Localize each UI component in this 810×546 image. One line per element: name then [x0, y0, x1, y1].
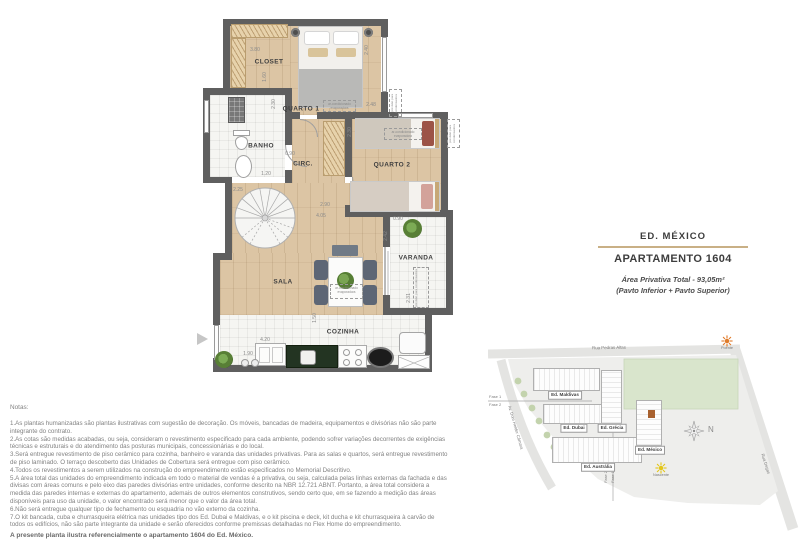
wall-lamp-icon: [364, 28, 373, 37]
ac-condenser-area: previsão para condensadora: [389, 89, 402, 117]
fase-1-label-bottom: Fase 1: [611, 471, 615, 483]
shower: [228, 97, 245, 123]
dining-chair: [363, 260, 377, 280]
sun-label: Poente: [721, 346, 733, 350]
room-label-quarto-2: QUARTO 2: [374, 162, 411, 169]
bath-sink: [235, 155, 252, 178]
room-label-banho: BANHO: [248, 143, 274, 150]
wall-lamp-icon: [291, 28, 300, 37]
fase-1-label-left: Fase 1: [489, 394, 501, 399]
window: [204, 100, 209, 133]
room-label-quarto-1: QUARTO 1: [283, 106, 320, 113]
sideboard: [332, 245, 358, 256]
burner: [343, 359, 350, 366]
sliding-door: [387, 251, 389, 295]
dimension-label: 1.20: [261, 171, 271, 177]
condenser-label: previsão para condensadora: [390, 90, 401, 116]
map-building-label: Ed. México: [635, 446, 665, 455]
blanket: [351, 182, 409, 211]
map-building-label: Ed. Maldivas: [548, 391, 582, 400]
highlighted-unit: [648, 410, 655, 418]
note-item: 7.O kit bancada, cuba e churrasqueira el…: [10, 514, 450, 530]
north-label: N: [708, 425, 714, 434]
wall-segment: [285, 170, 292, 183]
wall-segment: [383, 308, 453, 315]
pillow: [304, 31, 330, 45]
dimension-label: 4.05: [316, 213, 326, 219]
floor-plan: CLOSETQUARTO 1BANHOCIRC.QUARTO 2SALAVARA…: [195, 5, 463, 377]
sliding-door: [384, 247, 386, 295]
title-block: ED. MÉXICO APARTAMENTO 1604 Área Privati…: [598, 231, 748, 297]
note-item: 4.Todos os revestimentos a serem utiliza…: [10, 467, 450, 475]
window: [382, 37, 387, 92]
accent-pillow: [336, 48, 356, 57]
condenser-label: previsão para condensadora: [448, 120, 459, 147]
notes-footer: A presente planta ilustra referencialmen…: [10, 532, 450, 539]
room-label-sala: SALA: [273, 279, 292, 286]
wall-segment: [225, 183, 232, 259]
wall-segment: [290, 112, 300, 119]
dimension-label: 2.30: [347, 127, 353, 137]
ac-evaporator-unit: ar-condicionadoevaporadora: [330, 284, 363, 299]
room-label-closet: CLOSET: [255, 59, 284, 66]
dining-chair: [314, 260, 328, 280]
closet-shelf: [231, 24, 288, 38]
ac-label-line: evaporadora: [385, 134, 421, 138]
pillow: [422, 121, 434, 146]
room-label-circ-: CIRC.: [293, 161, 313, 168]
pillow: [421, 184, 433, 209]
entry-arrow-icon: [197, 333, 208, 345]
headboard: [435, 182, 439, 211]
map-building-label: Ed. Austrália: [581, 463, 615, 472]
stool: [241, 359, 249, 367]
dimension-label: 2.42: [383, 231, 389, 241]
closet-shelf: [231, 38, 246, 88]
pillow: [333, 31, 359, 45]
dimension-label: 0.90: [285, 151, 295, 157]
cooktop-oven: [367, 347, 394, 368]
kitchen-cabinet: [255, 343, 286, 366]
wall-segment: [223, 19, 230, 95]
headboard: [435, 119, 439, 148]
poente-sun-icon: [721, 334, 733, 346]
nascente-sun-icon: [655, 461, 667, 473]
burner: [355, 349, 362, 356]
ac-label-line: evaporadora: [324, 106, 355, 110]
notes-section: Notas: 1.As plantas humanizadas são plan…: [10, 404, 450, 546]
ac-condenser-area: previsão para condensadora: [447, 119, 460, 148]
fase-2-label-bottom: Fase 2: [604, 471, 608, 483]
dining-chair: [363, 285, 377, 305]
ac-label-line: evaporadora: [331, 290, 362, 294]
dimension-label: 1.90: [243, 351, 253, 357]
note-item: 3.Será entregue revestimento de piso cer…: [10, 451, 450, 467]
dimension-label: 2.31: [406, 293, 412, 303]
stove: [338, 345, 367, 368]
map-building-ed-dubai: [543, 404, 602, 424]
laundry-area: [398, 355, 430, 369]
burner: [343, 349, 350, 356]
map-building-ed-gr-cia: [601, 370, 622, 424]
site-map: Rua Pedras Altas Av. Dom Helder Câmara R…: [488, 333, 808, 535]
burner: [355, 359, 362, 366]
fridge: [399, 332, 426, 354]
sun-label: Nascente: [653, 473, 669, 477]
note-item: 1.As plantas humanizadas são plantas ilu…: [10, 420, 450, 436]
ac-condenser-area: previsão para condensadora: [413, 267, 429, 308]
bed-quarto1: [298, 26, 363, 108]
terrace-plant: [215, 351, 233, 368]
ac-evaporator-unit: ar-condicionadoevaporadora: [323, 100, 356, 112]
street-rua-pedras-altas: Rua Pedras Altas: [592, 345, 626, 351]
dimension-label: 2.48: [366, 102, 376, 108]
map-building-ed-m-xico: [636, 400, 662, 446]
divider-rule: [598, 246, 748, 248]
varanda-plant: [403, 219, 422, 238]
fase-2-label-left: Fase 2: [489, 402, 501, 407]
map-building-label: Ed. Dubai: [560, 424, 587, 433]
cabinet-door: [272, 347, 283, 363]
dimension-label: 1.50: [312, 313, 318, 323]
note-item: 2.As cotas são medidas acabadas, ou seja…: [10, 436, 450, 452]
map-building-ed-austr-lia: [552, 437, 642, 463]
wall-segment: [381, 26, 388, 37]
dimension-label: 0.90: [393, 216, 403, 222]
dimension-label: 2.25: [233, 187, 243, 193]
note-item: 6.Não será entregue qualquer tipo de fec…: [10, 506, 450, 514]
pavement-info: (Pavto Inferior + Pavto Superior): [598, 285, 748, 296]
ac-evaporator-unit: ar-condicionadoevaporadora: [384, 128, 422, 140]
wall-segment: [446, 217, 453, 315]
stool: [251, 359, 259, 367]
cabinet-door: [259, 347, 270, 363]
wardrobe: [323, 121, 345, 176]
kitchen-sink: [300, 350, 316, 365]
accent-pillow: [308, 48, 328, 57]
map-building-ed-maldivas: [533, 368, 600, 391]
toilet-bowl: [235, 136, 248, 150]
dimension-label: 1.60: [262, 72, 268, 82]
room-label-cozinha: COZINHA: [327, 329, 359, 336]
private-area: Área Privativa Total - 93,05m²: [598, 274, 748, 285]
spiral-staircase: [233, 186, 297, 250]
dimension-label: 2.90: [320, 202, 330, 208]
map-building-label: Ed. Grécia: [598, 424, 627, 433]
dimension-label: 2.30: [271, 99, 277, 109]
apartment-number: APARTAMENTO 1604: [598, 253, 748, 265]
dimension-label: 2.40: [364, 45, 370, 55]
wall-segment: [381, 92, 388, 119]
dimension-label: 4.20: [260, 337, 270, 343]
page-root: { "title_block": { "building": "ED. MÉXI…: [0, 0, 810, 540]
wall-segment: [203, 88, 292, 95]
wall-segment: [213, 253, 220, 325]
granite-counter: [286, 345, 338, 368]
condenser-label: previsão para condensadora: [414, 268, 428, 307]
notes-heading: Notas:: [10, 404, 450, 411]
building-name: ED. MÉXICO: [598, 231, 748, 242]
dining-chair: [314, 285, 328, 305]
note-item: 5.A área total das unidades do empreendi…: [10, 475, 450, 506]
dimension-label: 3.80: [250, 47, 260, 53]
bed-quarto2: [350, 181, 440, 212]
room-label-varanda: VARANDA: [399, 255, 434, 262]
